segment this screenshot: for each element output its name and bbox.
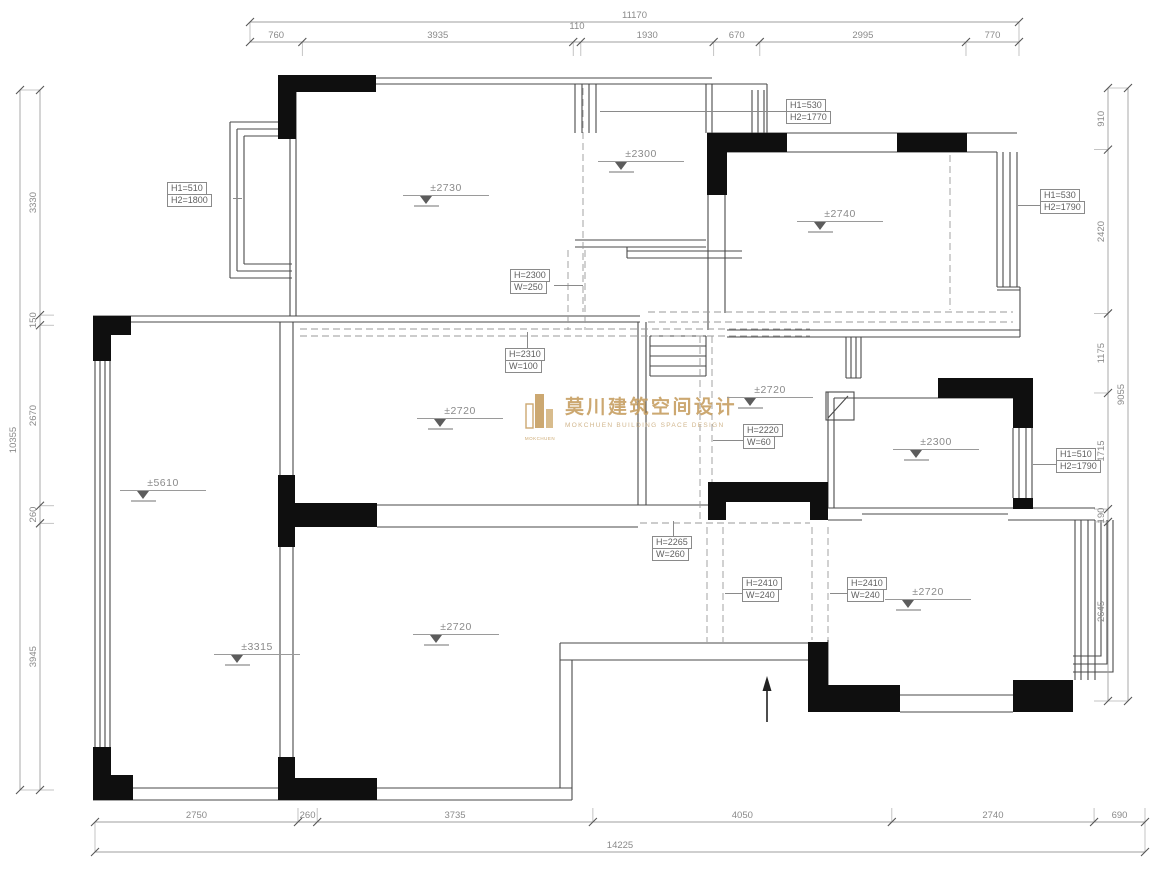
watermark-logo: MOKCHUEN — [522, 392, 558, 441]
dim-text: 3735 — [444, 810, 465, 821]
dim-text: 770 — [985, 30, 1001, 41]
leader-label: H1=510H2=1790 — [1056, 449, 1101, 473]
leader-label-line1: H1=530 — [786, 99, 826, 112]
elevation-finish-mark — [131, 500, 156, 502]
elevation-value: ±2720 — [417, 405, 503, 417]
elevation-underline — [403, 195, 489, 196]
leader-label-line1: H=2220 — [743, 424, 783, 437]
dim-text: 1175 — [1096, 343, 1107, 363]
leader-label: H1=530H2=1790 — [1040, 190, 1085, 214]
elevation-finish-mark — [808, 231, 833, 233]
leader-label-line2: W=100 — [505, 360, 542, 373]
elevation-underline — [417, 418, 503, 419]
elevation-triangle-icon — [910, 450, 922, 458]
dim-text: 4050 — [732, 810, 753, 821]
buildings-logo-icon — [525, 392, 555, 430]
floor-plan-canvas: 7603935110193067029957701117027502603735… — [0, 0, 1150, 873]
watermark-english-name: MOKCHUEN BUILDING SPACE DESIGN — [565, 422, 737, 429]
leader-label-line1: H=2310 — [505, 348, 545, 361]
dim-text: 260 — [28, 507, 39, 523]
elevation-finish-mark — [904, 459, 929, 461]
dim-text: 10355 — [8, 427, 19, 453]
leader-label: H=2220W=60 — [743, 425, 783, 449]
elevation-marker: ±2720 — [727, 384, 813, 398]
leader-label-line1: H1=530 — [1040, 189, 1080, 202]
leader-label: H=2310W=100 — [505, 349, 545, 373]
elevation-triangle-icon — [231, 655, 243, 663]
dim-text: 2420 — [1096, 221, 1107, 242]
dim-text: 3945 — [28, 646, 39, 667]
elevation-finish-mark — [738, 407, 763, 409]
dim-text: 14225 — [607, 840, 633, 851]
leader-line — [673, 521, 674, 537]
elevation-triangle-icon — [814, 222, 826, 230]
leader-label-line2: H2=1790 — [1056, 460, 1101, 473]
leader-label-line2: W=240 — [847, 589, 884, 602]
leader-line — [233, 198, 242, 199]
elevation-finish-mark — [428, 428, 453, 430]
leader-label: H=2265W=260 — [652, 537, 692, 561]
elevation-marker: ±2720 — [885, 586, 971, 600]
dim-chain-bottom: 275026037354050274069014225 — [91, 808, 1149, 856]
leader-label-line1: H=2265 — [652, 536, 692, 549]
leader-label-line1: H=2300 — [510, 269, 550, 282]
elevation-underline — [885, 599, 971, 600]
elevation-marker: ±2720 — [417, 405, 503, 419]
watermark-logo-caption: MOKCHUEN — [522, 436, 558, 441]
dim-text: 2740 — [982, 810, 1003, 821]
leader-line — [713, 440, 743, 441]
elevation-finish-mark — [225, 664, 250, 666]
dim-text: 3330 — [28, 192, 39, 213]
elevation-underline — [413, 634, 499, 635]
elevation-value: ±3315 — [214, 641, 300, 653]
dim-text: 3935 — [427, 30, 448, 41]
elevation-triangle-icon — [430, 635, 442, 643]
dim-text: 9055 — [1116, 384, 1127, 405]
leader-label-line2: W=260 — [652, 548, 689, 561]
leader-label: H1=510H2=1800 — [167, 183, 212, 207]
dim-text: 150 — [28, 312, 39, 328]
dim-chain-top: 76039351101930670299577011170 — [246, 10, 1023, 56]
dim-text: 2645 — [1096, 601, 1107, 622]
leader-label-line2: H2=1770 — [786, 111, 831, 124]
elevation-value: ±2730 — [403, 182, 489, 194]
elevation-marker: ±3315 — [214, 641, 300, 655]
leader-line — [1018, 205, 1040, 206]
elevation-marker: ±2300 — [598, 148, 684, 162]
elevation-finish-mark — [414, 205, 439, 207]
leader-label-line1: H=2410 — [847, 577, 887, 590]
leader-line — [725, 593, 742, 594]
dim-text: 690 — [1112, 810, 1128, 821]
elevation-triangle-icon — [420, 196, 432, 204]
leader-label-line1: H1=510 — [167, 182, 207, 195]
watermark-text: 莫川建筑空间设计 MOKCHUEN BUILDING SPACE DESIGN — [565, 392, 737, 429]
elevation-value: ±2740 — [797, 208, 883, 220]
dim-chain-left: 33301502670260394510355 — [8, 86, 54, 794]
elevation-underline — [893, 449, 979, 450]
dim-text: 1930 — [637, 30, 658, 41]
elevation-value: ±2300 — [893, 436, 979, 448]
elevation-marker: ±2720 — [413, 621, 499, 635]
leader-label-line2: H2=1800 — [167, 194, 212, 207]
dim-text: 190 — [1096, 508, 1107, 524]
dim-text: 760 — [268, 30, 284, 41]
elevation-value: ±2720 — [727, 384, 813, 396]
leader-label: H1=530H2=1770 — [786, 100, 831, 124]
elevation-underline — [598, 161, 684, 162]
leader-label: H=2410W=240 — [847, 578, 887, 602]
dim-text: 670 — [729, 30, 745, 41]
elevation-underline — [120, 490, 206, 491]
elevation-finish-mark — [609, 171, 634, 173]
leader-line — [527, 332, 528, 349]
dim-text: 2995 — [852, 30, 873, 41]
dim-text: 11170 — [622, 10, 647, 21]
watermark-chinese-name: 莫川建筑空间设计 — [565, 392, 737, 419]
north-arrow-icon — [763, 676, 772, 722]
elevation-marker: ±5610 — [120, 477, 206, 491]
elevation-value: ±2720 — [885, 586, 971, 598]
leader-label-line2: W=240 — [742, 589, 779, 602]
elevation-value: ±2720 — [413, 621, 499, 633]
leader-label-line2: W=60 — [743, 436, 775, 449]
leader-label: H=2410W=240 — [742, 578, 782, 602]
elevation-marker: ±2730 — [403, 182, 489, 196]
elevation-marker: ±2740 — [797, 208, 883, 222]
elevation-finish-mark — [896, 609, 921, 611]
dim-text: 260 — [300, 810, 316, 821]
elevation-value: ±2300 — [598, 148, 684, 160]
leader-line — [600, 111, 786, 112]
elevation-underline — [727, 397, 813, 398]
elevation-triangle-icon — [902, 600, 914, 608]
elevation-finish-mark — [424, 644, 449, 646]
dim-text: 110 — [569, 21, 584, 32]
elevation-marker: ±2300 — [893, 436, 979, 450]
elevation-triangle-icon — [434, 419, 446, 427]
leader-line — [830, 593, 847, 594]
elevation-underline — [214, 654, 300, 655]
leader-label-line2: W=250 — [510, 281, 547, 294]
elevation-triangle-icon — [137, 491, 149, 499]
leader-line — [554, 285, 583, 286]
leader-label-line1: H=2410 — [742, 577, 782, 590]
leader-label-line1: H1=510 — [1056, 448, 1096, 461]
elevation-triangle-icon — [744, 398, 756, 406]
leader-label-line2: H2=1790 — [1040, 201, 1085, 214]
leader-label: H=2300W=250 — [510, 270, 550, 294]
elevation-triangle-icon — [615, 162, 627, 170]
elevation-underline — [797, 221, 883, 222]
elevation-value: ±5610 — [120, 477, 206, 489]
dim-text: 2750 — [186, 810, 207, 821]
dim-text: 910 — [1096, 111, 1107, 127]
watermark: MOKCHUEN 莫川建筑空间设计 MOKCHUEN BUILDING SPAC… — [522, 392, 737, 441]
dim-text: 2670 — [28, 405, 39, 426]
leader-line — [1033, 464, 1056, 465]
